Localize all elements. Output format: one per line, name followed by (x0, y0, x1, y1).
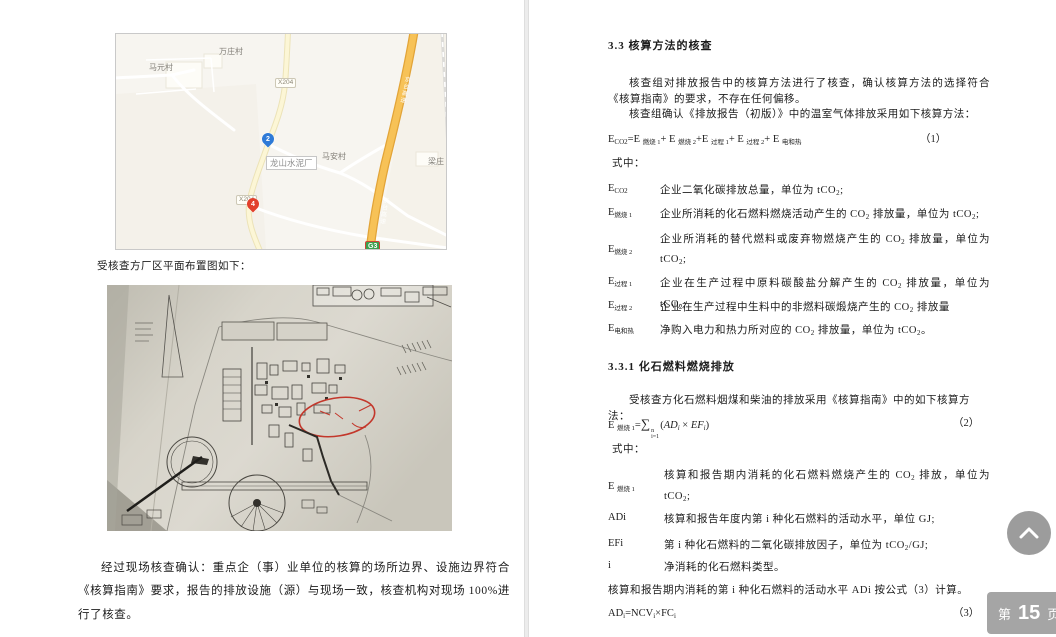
where-label: 式中： (608, 156, 994, 172)
section-heading: 3.3 核算方法的核查 (608, 39, 990, 55)
formula-1: ECO2=E 燃烧 1+ E 燃烧 2+E 过程 1+ E 过程 2+ E 电和… (608, 132, 990, 148)
sigma-symbol: ∑ (641, 416, 650, 431)
chevron-up-icon (1007, 511, 1051, 555)
definition-row: E燃烧 2 企业所消耗的替代燃料或废弃物燃烧产生的 CO2 排放量，单位为 tC… (608, 229, 990, 271)
definition-row: E过程 2 企业在生产过程中生料中的非燃料碳煅烧产生的 CO2 排放量 (608, 298, 990, 319)
paragraph: 核查组对排放报告中的核算方法进行了核查，确认核算方法的选择符合《核算指南》的要求… (608, 76, 990, 107)
definition-row: E电和热 净购入电力和热力所对应的 CO2 排放量，单位为 tCO2。 (608, 321, 990, 342)
map-pin-red-icon[interactable]: 4 (245, 196, 262, 213)
map-village-label: 梁庄 (428, 156, 444, 167)
page-number-badge: 第 15 页 (987, 592, 1056, 634)
formula-3: ADi=NCVi×FCi （3） (608, 606, 990, 622)
paragraph: 核查组确认《排放报告（初版）》中的温室气体排放采用如下核算方法： (608, 107, 990, 123)
map-pin-blue-icon[interactable]: 2 (260, 131, 277, 148)
document-page-left: 万庄村 马元村 马安村 梁庄 X204 X204 G3 京台高速 京台高速 2 … (0, 0, 524, 637)
map-village-label: 马安村 (322, 151, 346, 162)
definition-row: i 净消耗的化石燃料类型。 (608, 558, 990, 579)
scroll-to-top-button[interactable] (1007, 511, 1051, 555)
map-village-label: 马元村 (149, 62, 173, 73)
where-label: 式中： (608, 442, 994, 458)
definition-row: E燃烧 1 企业所消耗的化石燃料燃烧活动产生的 CO2 排放量，单位为 tCO2… (608, 205, 990, 226)
definition-row: EFi 第 i 种化石燃料的二氧化碳排放因子，单位为 tCO2/GJ; (608, 536, 990, 557)
location-map: 万庄村 马元村 马安村 梁庄 X204 X204 G3 京台高速 京台高速 2 … (115, 33, 447, 250)
definition-row: E 燃烧 1 核算和报告期内消耗的化石燃料燃烧产生的 CO2 排放，单位为 tC… (608, 466, 990, 507)
expressway-badge: G3 (365, 241, 380, 250)
definition-row: ECO2 企业二氧化碳排放总量，单位为 tCO2; (608, 181, 990, 202)
subsection-heading: 3.3.1 化石燃料燃烧排放 (608, 360, 990, 376)
paragraph: 核算和报告期内消耗的第 i 种化石燃料的活动水平 ADi 按公式（3）计算。 (608, 583, 990, 599)
page-badge-number: 15 (1018, 602, 1040, 625)
road-number-badge: X204 (275, 78, 296, 88)
map-place-label: 龙山水泥厂 (266, 156, 317, 170)
definition-row: ADi 核算和报告年度内第 i 种化石燃料的活动水平，单位 GJ; (608, 510, 990, 531)
formula-number: （3） (953, 606, 979, 622)
page-badge-suffix: 页 (1047, 604, 1056, 623)
page-badge-prefix: 第 (998, 604, 1011, 623)
factory-layout-photo (107, 285, 452, 531)
figure-caption: 受核查方厂区平面布置图如下： (97, 258, 251, 273)
formula-number: （2） (953, 416, 979, 432)
formula-2: E 燃烧 1=∑ni=1(ADi × EFi) （2） (608, 416, 990, 440)
document-page-right: 3.3 核算方法的核查 核查组对排放报告中的核算方法进行了核查，确认核算方法的选… (529, 0, 1056, 637)
formula-number: （1） (920, 132, 946, 148)
site-verification-paragraph: 经过现场核查确认：重点企（事）业单位的核算的场所边界、设施边界符合《核算指南》要… (78, 557, 510, 628)
map-village-label: 万庄村 (219, 46, 243, 57)
